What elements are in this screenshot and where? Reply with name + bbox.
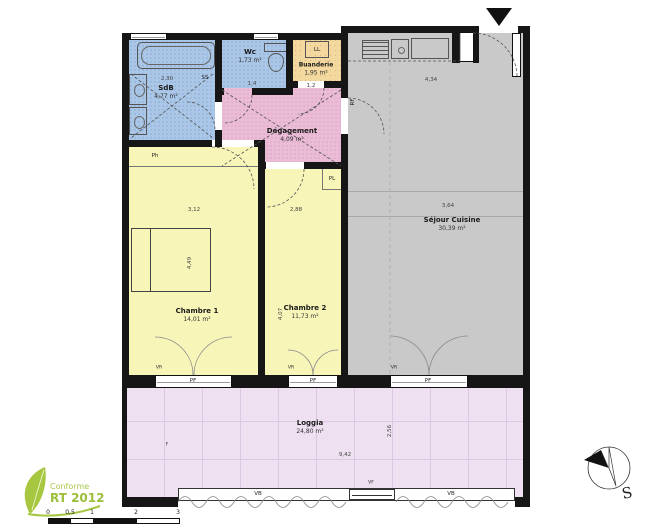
dim-chambre2-depth: 4,07: [278, 308, 284, 320]
entry-door-swing: [473, 33, 517, 77]
room-label-degagement: Dégagement 4,09 m²: [267, 127, 317, 143]
scale-tick-1: 1: [90, 509, 94, 516]
scale-tick-05: 0,5: [65, 509, 75, 516]
dim-chambre2-width: 2,88: [290, 207, 302, 213]
linework-overlay: [0, 0, 652, 525]
dim-wc-width: 1,4: [248, 81, 257, 87]
tag-vr-3: VR: [391, 366, 397, 371]
dim-buanderie-width: 1,2: [307, 83, 316, 89]
degagement-area: 4,09 m²: [267, 136, 317, 144]
sdb-name: SdB: [154, 84, 178, 93]
dim-loggia-width: 9,42: [339, 452, 351, 458]
loggia-name: Loggia: [296, 419, 323, 428]
pf2-leaf-right: [313, 350, 338, 375]
room-label-loggia: Loggia 24,80 m²: [296, 419, 323, 435]
chambre2-area: 11,73 m²: [284, 313, 327, 321]
sejour-area: 30,39 m²: [424, 225, 481, 233]
sdb-door-swing: [187, 102, 215, 130]
tag-closet-chambre2: PL: [329, 176, 335, 182]
room-label-chambre1: Chambre 1 14,01 m²: [176, 307, 219, 323]
guardrail-scallops-right: [396, 497, 508, 508]
dim-chambre1-depth: 4,49: [187, 257, 193, 269]
scale-seg-4: [137, 519, 179, 523]
buanderie-name: Buanderie: [299, 62, 334, 70]
pf2-leaf-left: [288, 350, 313, 375]
dim-sejour-width: 3,64: [442, 203, 454, 209]
chambre1-name: Chambre 1: [176, 307, 219, 316]
floor-plan: SdB 4,77 m² Wc 1,73 m² Buanderie 1,95 m²…: [0, 0, 652, 525]
tag-radiator: RF: [350, 99, 356, 106]
scale-tick-2: 2: [134, 509, 138, 516]
tag-vb-left: VB: [254, 491, 262, 497]
buanderie-door-swing: [298, 88, 324, 114]
guardrail-scallops-left: [178, 497, 346, 508]
stamp-line2: RT 2012: [50, 491, 104, 505]
tag-vr-2: VR: [288, 366, 294, 371]
scale-seg-1: [49, 519, 71, 523]
sdb-area: 4,77 m²: [154, 93, 178, 101]
tag-pf-chambre2: PF: [310, 378, 316, 384]
scale-bar-segments: [48, 518, 180, 524]
tag-vb-right: VB: [447, 491, 455, 497]
dim-chambre1-width: 3,12: [188, 207, 200, 213]
sejour-name: Séjour Cuisine: [424, 216, 481, 225]
scale-tick-0: 0: [46, 509, 50, 516]
room-label-buanderie: Buanderie 1,95 m²: [299, 62, 334, 77]
chambre1-door-swing: [212, 147, 254, 189]
chambre2-name: Chambre 2: [284, 304, 327, 313]
chambre1-area: 14,01 m²: [176, 316, 219, 324]
tag-pf-sejour: PF: [425, 378, 431, 384]
dim-sdb-width: 2,30: [161, 76, 173, 82]
pf3-leaf-right: [429, 336, 468, 375]
tag-f-loggia: F: [166, 443, 169, 448]
degagement-name: Dégagement: [267, 127, 317, 136]
tag-towel-dryer: SS: [202, 75, 209, 81]
pf1-leaf-right: [194, 337, 232, 375]
stamp-line1: Conforme: [50, 482, 89, 491]
dim-kitchen-width: 4,34: [425, 77, 437, 83]
tag-closet-chambre1: Ph: [152, 153, 159, 159]
chambre2-door-swing: [266, 169, 304, 207]
wc-name: Wc: [238, 48, 262, 57]
tag-pf-chambre1: PF: [190, 378, 196, 384]
wc-door-swing: [224, 95, 252, 123]
scale-tick-3: 3: [176, 509, 180, 516]
loggia-area: 24,80 m²: [296, 428, 323, 436]
tag-washing-machine: LL: [314, 47, 320, 53]
scale-bar: 0 0,5 1 2 3: [44, 509, 184, 525]
room-label-chambre2: Chambre 2 11,73 m²: [284, 304, 327, 320]
tag-vf-panel: VF: [368, 481, 374, 486]
tag-vr-1: VR: [156, 366, 162, 371]
dim-loggia-depth: 2,56: [387, 425, 393, 437]
compass-icon: [584, 447, 630, 489]
room-label-sejour: Séjour Cuisine 30,39 m²: [424, 216, 481, 232]
scale-seg-3: [93, 519, 137, 523]
scale-seg-2: [71, 519, 93, 523]
buanderie-area: 1,95 m²: [299, 69, 334, 77]
room-label-sdb: SdB 4,77 m²: [154, 84, 178, 100]
room-label-wc: Wc 1,73 m²: [238, 48, 262, 64]
wc-area: 1,73 m²: [238, 57, 262, 65]
entrance-arrow-icon: [486, 8, 512, 26]
